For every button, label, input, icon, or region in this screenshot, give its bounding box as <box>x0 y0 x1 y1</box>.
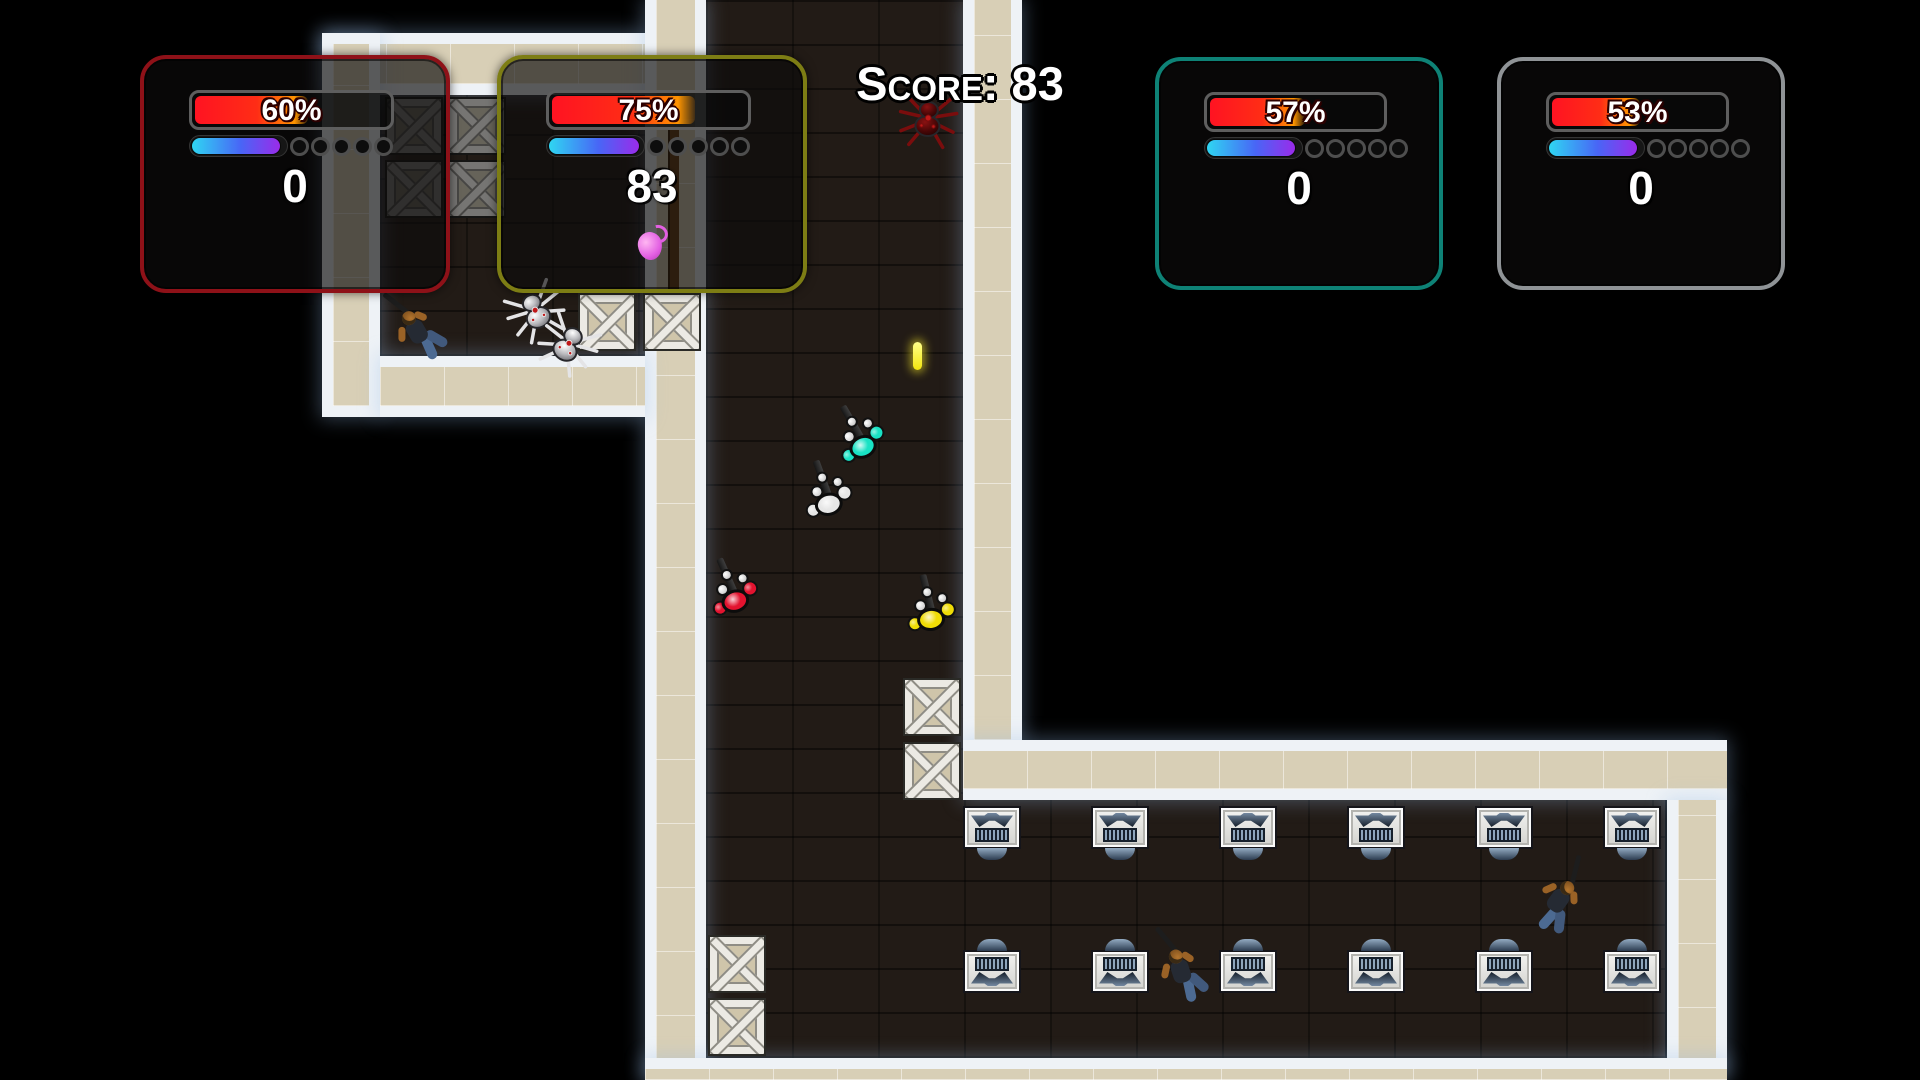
desk-workstation <box>1219 806 1277 849</box>
ammo-slot <box>1710 139 1729 158</box>
health-bar: 60% <box>189 90 394 130</box>
health-bar: 53% <box>1546 92 1729 132</box>
chair-back-icon <box>1483 813 1525 827</box>
chair-seat-icon <box>977 939 1007 951</box>
bullet-projectile <box>913 342 922 370</box>
ammo-slot <box>668 137 687 156</box>
health-bar: 57% <box>1204 92 1387 132</box>
desk-workstation <box>1347 950 1405 993</box>
chair-back-icon <box>1227 813 1269 827</box>
desk-room-right-wall <box>1667 800 1727 1072</box>
player-score: 0 <box>1159 161 1439 215</box>
ammo-slot <box>710 137 729 156</box>
crate <box>708 998 766 1056</box>
ammo-slot <box>290 137 309 156</box>
chair-seat-icon <box>1617 939 1647 951</box>
energy-bar <box>1204 137 1303 159</box>
desk-workstation <box>963 806 1021 849</box>
player-panel-gray: 53% 0 <box>1497 57 1785 290</box>
player-score: 0 <box>144 159 446 213</box>
ammo-slot <box>311 137 330 156</box>
energy-bar <box>189 135 288 157</box>
ammo-row <box>546 135 750 157</box>
corridor-right-wall <box>963 0 1022 740</box>
desk-workstation <box>1091 950 1149 993</box>
chair-back-icon <box>1099 813 1141 827</box>
ammo-slot <box>647 137 666 156</box>
crate <box>708 935 766 993</box>
ammo-slot <box>1389 139 1408 158</box>
chair-back-icon <box>1483 972 1525 986</box>
crate <box>903 678 961 736</box>
keyboard-icon <box>975 957 1009 971</box>
ammo-slot <box>1347 139 1366 158</box>
bottom-wall <box>645 1058 1727 1080</box>
chair-seat-icon <box>1105 939 1135 951</box>
ammo-slot <box>1368 139 1387 158</box>
ammo-slot <box>1689 139 1708 158</box>
ammo-slot <box>1326 139 1345 158</box>
chair-back-icon <box>971 813 1013 827</box>
chair-back-icon <box>1099 972 1141 986</box>
chair-back-icon <box>1611 972 1653 986</box>
desk-workstation <box>963 950 1021 993</box>
desk-workstation <box>1475 806 1533 849</box>
ammo-row <box>1204 137 1408 159</box>
player-score: 83 <box>501 159 803 213</box>
health-percent-label: 60% <box>192 94 391 128</box>
desk-workstation <box>1475 950 1533 993</box>
health-percent-label: 57% <box>1207 96 1384 130</box>
ammo-slot <box>1668 139 1687 158</box>
keyboard-icon <box>1359 828 1393 842</box>
health-bar: 75% <box>546 90 751 130</box>
ammo-row <box>1546 137 1750 159</box>
health-percent-label: 75% <box>549 94 748 128</box>
energy-bar <box>1546 137 1645 159</box>
chair-back-icon <box>1611 813 1653 827</box>
ammo-slot <box>332 137 351 156</box>
desk-workstation <box>1603 806 1661 849</box>
chair-seat-icon <box>1361 939 1391 951</box>
chair-back-icon <box>1227 972 1269 986</box>
energy-bar <box>546 135 645 157</box>
keyboard-icon <box>1103 957 1137 971</box>
ammo-row <box>189 135 393 157</box>
keyboard-icon <box>1103 828 1137 842</box>
ammo-slot <box>1731 139 1750 158</box>
crate <box>643 293 701 351</box>
player-score: 0 <box>1501 161 1781 215</box>
ammo-slot <box>353 137 372 156</box>
chair-seat-icon <box>1233 939 1263 951</box>
keyboard-icon <box>1487 828 1521 842</box>
keyboard-icon <box>975 828 1009 842</box>
chair-back-icon <box>1355 813 1397 827</box>
player-panel-red: 60% 0 <box>140 55 450 293</box>
desk-workstation <box>1603 950 1661 993</box>
player-panel-yellow: 75% 83 <box>497 55 807 293</box>
game-screen: 60% 0 75% 83 57% 0 <box>0 0 1920 1080</box>
chair-back-icon <box>1355 972 1397 986</box>
ammo-slot <box>374 137 393 156</box>
desk-workstation <box>1091 806 1149 849</box>
ammo-slot <box>1305 139 1324 158</box>
health-percent-label: 53% <box>1549 96 1726 130</box>
desk-workstation <box>1347 806 1405 849</box>
chair-seat-icon <box>1489 939 1519 951</box>
desk-room-top-wall <box>963 740 1727 800</box>
chair-back-icon <box>971 972 1013 986</box>
ammo-slot <box>731 137 750 156</box>
ammo-slot <box>689 137 708 156</box>
keyboard-icon <box>1231 828 1265 842</box>
keyboard-icon <box>1487 957 1521 971</box>
keyboard-icon <box>1359 957 1393 971</box>
keyboard-icon <box>1615 828 1649 842</box>
keyboard-icon <box>1615 957 1649 971</box>
grenade-icon <box>638 227 666 261</box>
player-soldier[interactable] <box>893 570 967 654</box>
score-banner: Score: 83 <box>856 56 1064 111</box>
player-panel-teal: 57% 0 <box>1155 57 1443 290</box>
ammo-slot <box>1647 139 1666 158</box>
keyboard-icon <box>1231 957 1265 971</box>
crate <box>903 742 961 800</box>
